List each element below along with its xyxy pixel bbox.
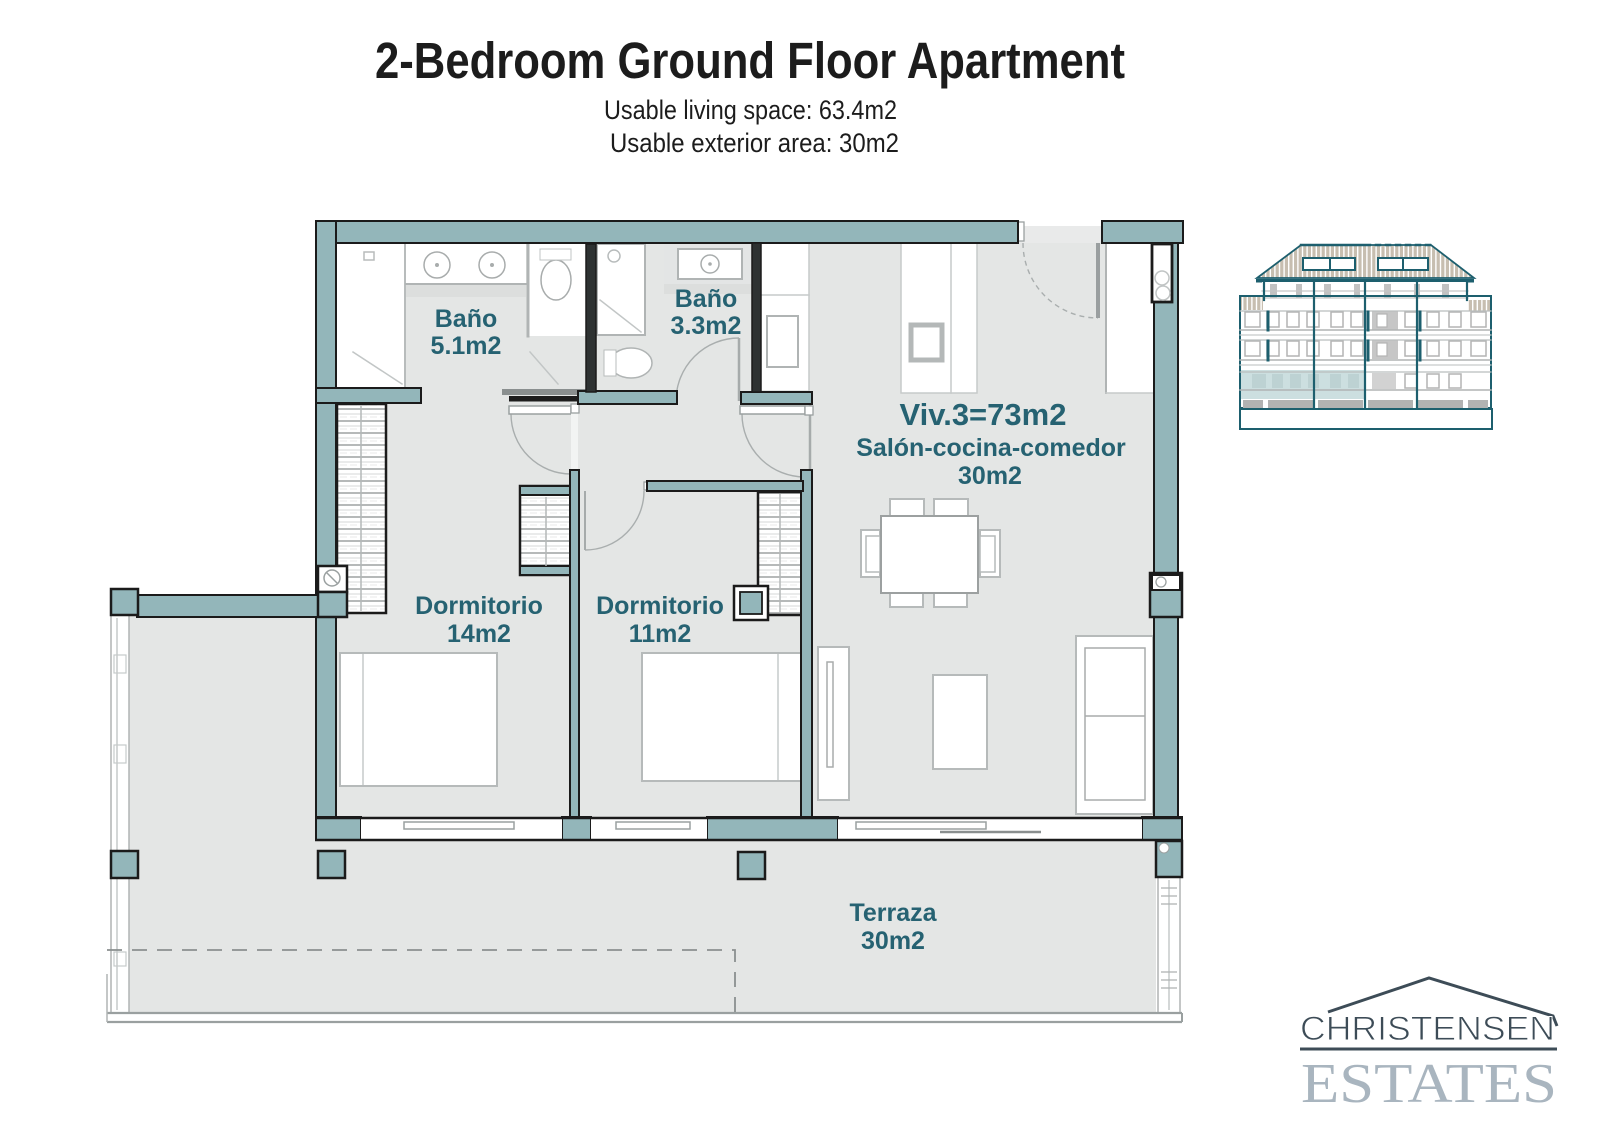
svg-text:11m2: 11m2	[629, 620, 692, 648]
svg-text:3.3m2: 3.3m2	[671, 312, 742, 340]
svg-text:CHRISTENSEN: CHRISTENSEN	[1300, 1010, 1555, 1048]
svg-text:ESTATES: ESTATES	[1301, 1053, 1557, 1115]
svg-text:Baño: Baño	[675, 285, 738, 313]
svg-text:30m2: 30m2	[861, 927, 925, 955]
svg-text:2-Bedroom Ground Floor Apartme: 2-Bedroom Ground Floor Apartment	[375, 32, 1125, 89]
svg-text:Dormitorio: Dormitorio	[415, 592, 543, 620]
svg-text:Terraza: Terraza	[849, 899, 937, 927]
svg-text:Dormitorio: Dormitorio	[596, 592, 724, 620]
svg-text:Salón-cocina-comedor: Salón-cocina-comedor	[856, 434, 1126, 462]
svg-text:Usable exterior area: 30m2: Usable exterior area: 30m2	[610, 128, 899, 158]
svg-text:Viv.3=73m2: Viv.3=73m2	[900, 397, 1067, 432]
svg-text:5.1m2: 5.1m2	[431, 332, 502, 360]
svg-text:Baño: Baño	[435, 305, 498, 333]
svg-text:30m2: 30m2	[958, 462, 1022, 490]
svg-text:Usable living space: 63.4m2: Usable living space: 63.4m2	[604, 95, 897, 125]
svg-text:14m2: 14m2	[447, 620, 511, 648]
